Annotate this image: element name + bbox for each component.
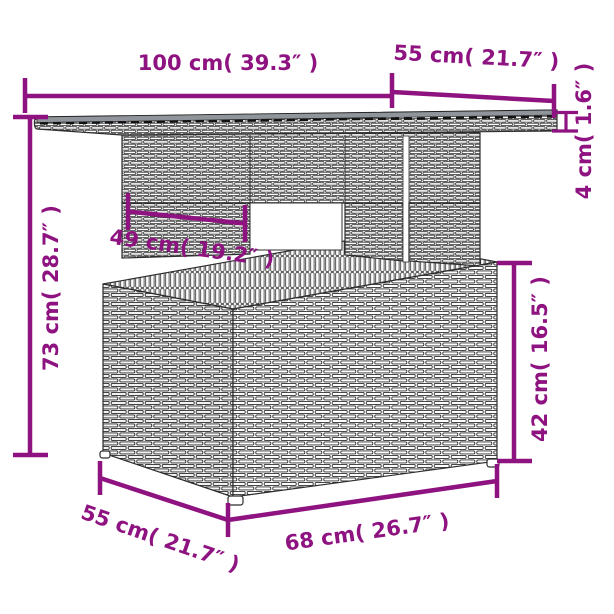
right-pedestal-side-face [345, 203, 403, 261]
pedestal-band [122, 133, 480, 204]
dim-tabletop-width: 100 cm( 39.3″ ) [25, 51, 392, 113]
dim-label-total-height: 73 cm( 28.7″ ) [39, 205, 63, 371]
dimension-diagram: 100 cm( 39.3″ ) 55 cm( 21.7″ ) 4 cm( 1.6… [0, 0, 614, 614]
dim-base-height: 42 cm( 16.5″ ) [497, 263, 552, 461]
right-pedestal-front-face [409, 203, 480, 266]
window-opening [250, 203, 342, 250]
foot-left [100, 451, 110, 458]
dim-label-base-width: 68 cm( 26.7″ ) [283, 509, 451, 556]
base-box [100, 262, 499, 505]
dim-tabletop-depth: 55 cm( 21.7″ ) [392, 41, 560, 118]
diagram-canvas: 100 cm( 39.3″ ) 55 cm( 21.7″ ) 4 cm( 1.6… [0, 0, 614, 614]
dim-label-base-depth: 55 cm( 21.7″ ) [78, 500, 243, 577]
dim-label-tabletop-thickness: 4 cm( 1.6″ ) [572, 63, 596, 200]
tabletop [34, 110, 557, 135]
dim-label-base-height: 42 cm( 16.5″ ) [528, 276, 552, 442]
right-pedestal-slit [403, 136, 409, 262]
dim-label-tabletop-depth: 55 cm( 21.7″ ) [393, 41, 560, 74]
dim-total-height: 73 cm( 28.7″ ) [13, 117, 63, 455]
dim-tabletop-thickness: 4 cm( 1.6″ ) [552, 63, 596, 200]
dim-label-tabletop-width: 100 cm( 39.3″ ) [138, 51, 319, 75]
